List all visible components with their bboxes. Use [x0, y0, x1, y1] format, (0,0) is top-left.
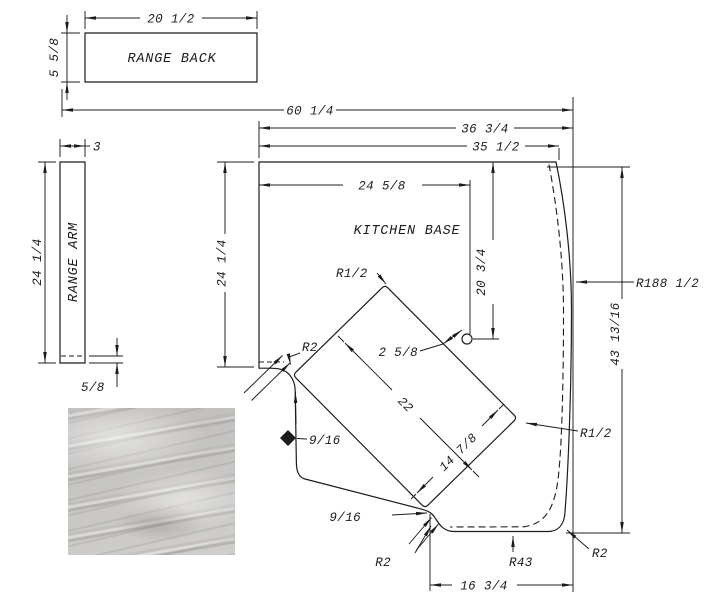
radius-bottom-sweep: R43 — [509, 536, 533, 570]
dim-back-width: 20 1/2 — [85, 11, 257, 29]
kitchen-base-label: KITCHEN BASE — [354, 224, 461, 239]
dim-base-bottom-width-text: 16 3/4 — [460, 580, 507, 594]
dim-base-top-width: 35 1/2 — [259, 141, 559, 161]
dim-back-height-text: 5 5/8 — [48, 38, 62, 78]
dim-hole-from-left: 24 5/8 — [259, 180, 470, 335]
radius-right-edge: R188 1/2 — [576, 277, 699, 291]
dim-hole-from-left-text: 24 5/8 — [358, 180, 406, 194]
dim-base-right-height: 43 13/16 — [547, 167, 630, 533]
dim-arm-width-text: 3 — [93, 141, 101, 155]
strip-bottom-callout: 9/16 — [329, 511, 438, 551]
range-arm-part: RANGE ARM 3 24 1/4 5/8 — [31, 139, 123, 395]
dim-arm-length: 24 1/4 — [31, 162, 56, 363]
dim-cutout-length-text: 22 — [394, 395, 415, 416]
dim-arm-width: 3 — [60, 139, 101, 157]
dim-base-right-height-text: 43 13/16 — [609, 302, 623, 365]
radius-bottom-left-text: R2 — [375, 556, 391, 570]
diamond-marker — [280, 430, 296, 446]
dim-arm-length-text: 24 1/4 — [31, 238, 45, 285]
range-back-label: RANGE BACK — [127, 52, 216, 67]
radius-cutout-top: R1/2 — [336, 267, 386, 284]
dim-arm-edge-text: 5/8 — [81, 381, 105, 395]
dim-arm-edge: 5/8 — [81, 338, 123, 395]
radius-bottom-right-text: R2 — [592, 547, 608, 561]
dim-base-outer-width: 36 3/4 — [259, 121, 573, 158]
radius-bottom-sweep-text: R43 — [509, 556, 533, 570]
dim-hole-to-cutout-text: 2 5/8 — [378, 346, 418, 360]
radius-cutout-top-text: R1/2 — [336, 267, 368, 281]
dim-back-width-text: 20 1/2 — [147, 13, 195, 27]
dim-base-outer-width-text: 36 3/4 — [461, 123, 508, 137]
radius-right-edge-text: R188 1/2 — [636, 277, 699, 291]
dim-hole-to-cutout: 2 5/8 — [378, 330, 462, 360]
dim-overall-width-text: 60 1/4 — [286, 105, 333, 119]
radius-arm-corner: R2 — [289, 341, 318, 365]
faucet-hole — [462, 334, 472, 344]
dim-cutout-width: 14 7/8 — [411, 404, 504, 499]
dim-base-bottom-width: 16 3/4 — [430, 514, 573, 594]
radius-bottom-left: R2 — [375, 526, 431, 570]
dim-back-height: 5 5/8 — [48, 15, 80, 100]
material-sample-image — [68, 408, 235, 555]
dim-hole-from-top-text: 20 3/4 — [475, 248, 489, 295]
range-back-part: RANGE BACK 20 1/2 5 5/8 — [48, 11, 257, 100]
dim-base-left-height: 24 1/4 — [216, 162, 255, 367]
cad-drawing-canvas: RANGE BACK 20 1/2 5 5/8 RANGE ARM — [0, 0, 725, 600]
radius-cutout-right-text: R1/2 — [580, 427, 612, 441]
strip-top-callout: 9/16 — [244, 356, 341, 449]
dim-base-top-width-text: 35 1/2 — [472, 141, 520, 155]
dim-hole-from-top: 20 3/4 — [473, 162, 499, 339]
range-arm-label: RANGE ARM — [67, 222, 82, 302]
radius-arm-corner-text: R2 — [302, 341, 318, 355]
dim-base-left-height-text: 24 1/4 — [216, 239, 230, 286]
strip-bottom-text: 9/16 — [329, 511, 361, 525]
edge-dashed-line — [450, 165, 564, 528]
strip-top-text: 9/16 — [309, 434, 341, 448]
dim-cutout-width-text: 14 7/8 — [437, 431, 480, 474]
